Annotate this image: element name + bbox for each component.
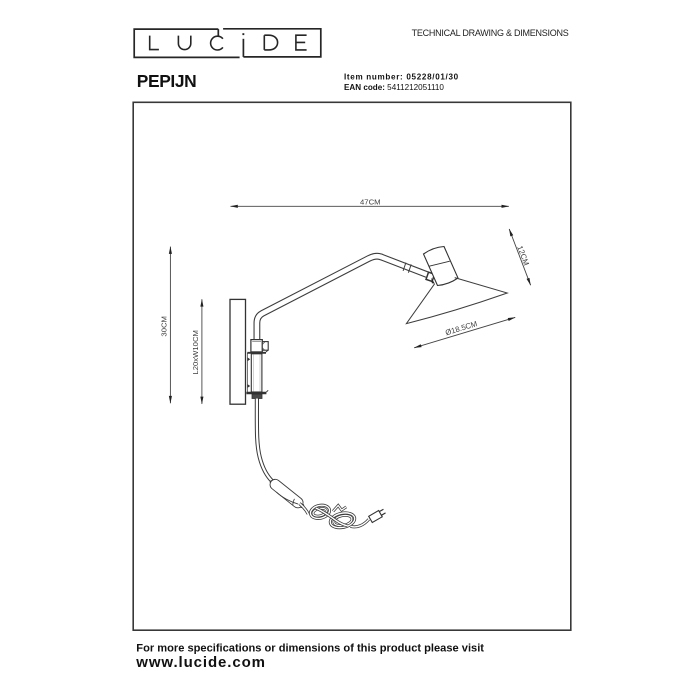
- svg-text:Ø18.5CM: Ø18.5CM: [444, 319, 478, 337]
- svg-text:L20xW10CM: L20xW10CM: [191, 330, 200, 374]
- svg-text:TECHNICAL DRAWING & DIMENSIONS: TECHNICAL DRAWING & DIMENSIONS: [412, 28, 569, 38]
- svg-text:Item number: 05228/01/30: Item number: 05228/01/30: [344, 72, 459, 81]
- svg-text:47CM: 47CM: [360, 198, 381, 207]
- svg-text:For more specifications or dim: For more specifications or dimensions of…: [136, 643, 484, 655]
- svg-text:www.lucide.com: www.lucide.com: [135, 654, 266, 671]
- svg-text:12CM: 12CM: [515, 244, 531, 266]
- svg-text:PEPIJN: PEPIJN: [137, 71, 196, 91]
- svg-text:EAN code: 5411212051110: EAN code: 5411212051110: [344, 83, 444, 92]
- svg-text:30CM: 30CM: [160, 316, 169, 337]
